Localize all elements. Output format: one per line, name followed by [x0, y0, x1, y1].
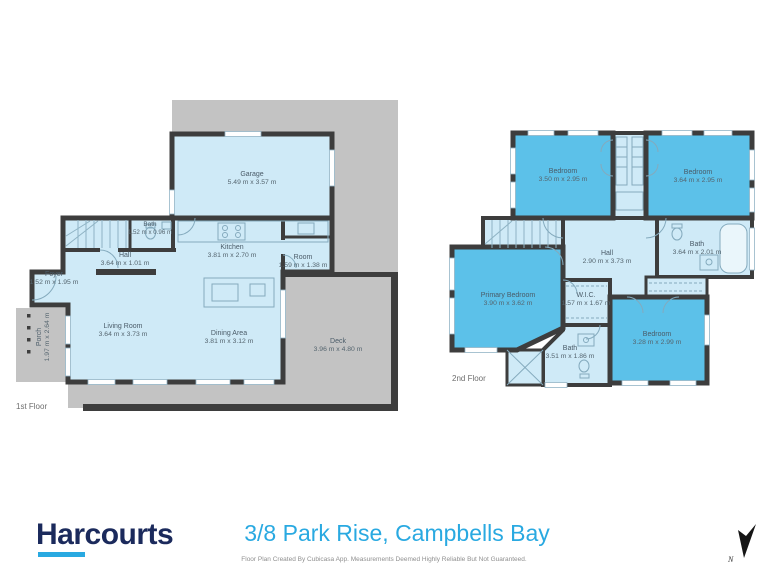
room-name: Bedroom	[684, 169, 712, 176]
room-dims: 1.52 m x 1.95 m	[30, 279, 79, 288]
room-label-bedroom-tr: Bedroom 3.64 m x 2.95 m	[674, 168, 723, 186]
hall-wall-bar	[96, 269, 156, 275]
room-name: Foyer	[45, 271, 63, 278]
room-name: Hall	[119, 252, 131, 259]
room-label-garage: Garage 5.49 m x 3.57 m	[228, 170, 277, 188]
room-name: W.I.C.	[576, 292, 595, 299]
room-label-living-room: Living Room 3.64 m x 3.73 m	[99, 322, 148, 340]
north-label: N	[728, 555, 733, 564]
room-name: Garage	[240, 171, 263, 178]
room-name: Deck	[330, 338, 346, 345]
room-label-wic: W.I.C. 1.57 m x 1.67 m	[562, 291, 611, 309]
room-name: Room	[294, 254, 313, 261]
property-address: 3/8 Park Rise, Campbells Bay	[197, 520, 597, 547]
room-label-bedroom-br: Bedroom 3.28 m x 2.99 m	[633, 330, 682, 348]
room-dims: 3.64 m x 2.95 m	[674, 177, 723, 186]
closet-column	[613, 133, 646, 218]
room-dims: 3.64 m x 3.73 m	[99, 331, 148, 340]
room-dims: 1.59 m x 1.38 m	[279, 262, 328, 271]
corridor	[646, 277, 707, 297]
room-name: Porch	[36, 328, 43, 346]
room-label-bath-1f: Bath 1.52 m x 0.96 m	[128, 221, 172, 237]
floor-label-2nd: 2nd Floor	[452, 374, 486, 383]
north-arrow-icon	[734, 522, 760, 562]
room-label-room: Room 1.59 m x 1.38 m	[279, 253, 328, 271]
room-name: Living Room	[104, 323, 143, 330]
room-dims: 2.90 m x 3.73 m	[583, 258, 632, 267]
room-dims: 1.52 m x 0.96 m	[128, 229, 172, 237]
room-name: Bedroom	[549, 168, 577, 175]
room-name: Dining Area	[211, 330, 247, 337]
room-dims: 3.28 m x 2.99 m	[633, 339, 682, 348]
room-dims: 3.81 m x 3.12 m	[205, 338, 254, 347]
disclaimer-text: Floor Plan Created By Cubicasa App. Meas…	[0, 556, 768, 563]
room-label-bath-bottom: Bath 3.51 m x 1.86 m	[546, 344, 595, 362]
room-label-primary-bedroom: Primary Bedroom 3.90 m x 3.62 m	[481, 291, 535, 309]
room-dims: 3.64 m x 1.01 m	[101, 260, 150, 269]
room-dims: 3.81 m x 2.70 m	[208, 252, 257, 261]
room-label-deck: Deck 3.96 m x 4.80 m	[314, 337, 363, 355]
floor-plan-page: Garage 5.49 m x 3.57 m Bath 1.52 m x 0.9…	[0, 0, 768, 576]
room-name: Bath	[143, 221, 156, 228]
room-name: Hall	[601, 250, 613, 257]
room-label-bath-right: Bath 3.64 m x 2.01 m	[673, 240, 722, 258]
room-dims: 3.64 m x 2.01 m	[673, 249, 722, 258]
room-dims: 1.97 m x 2.64 m	[44, 313, 53, 362]
room-name: Bath	[690, 241, 704, 248]
room-name: Bath	[563, 345, 577, 352]
room-name: Kitchen	[220, 244, 243, 251]
room-label-kitchen: Kitchen 3.81 m x 2.70 m	[208, 243, 257, 261]
room-dims: 1.57 m x 1.67 m	[562, 300, 611, 309]
room-label-hall-1f: Hall 3.64 m x 1.01 m	[101, 251, 150, 269]
floor-label-1st: 1st Floor	[16, 402, 47, 411]
room-label-porch: Porch 1.97 m x 2.64 m	[35, 313, 53, 362]
room-dims: 3.96 m x 4.80 m	[314, 346, 363, 355]
room-label-hall-2f: Hall 2.90 m x 3.73 m	[583, 249, 632, 267]
room-name: Primary Bedroom	[481, 292, 535, 299]
room-dims: 5.49 m x 3.57 m	[228, 179, 277, 188]
room-label-dining-area: Dining Area 3.81 m x 3.12 m	[205, 329, 254, 347]
room-dims: 3.50 m x 2.95 m	[539, 176, 588, 185]
room-dims: 3.90 m x 3.62 m	[481, 300, 535, 309]
room-label-foyer: Foyer 1.52 m x 1.95 m	[30, 270, 79, 288]
room-dims: 3.51 m x 1.86 m	[546, 353, 595, 362]
floor-plan-drawing	[0, 0, 768, 576]
room-label-bedroom-tl: Bedroom 3.50 m x 2.95 m	[539, 167, 588, 185]
room-name: Bedroom	[643, 331, 671, 338]
harcourts-logo: Harcourts	[36, 518, 173, 552]
